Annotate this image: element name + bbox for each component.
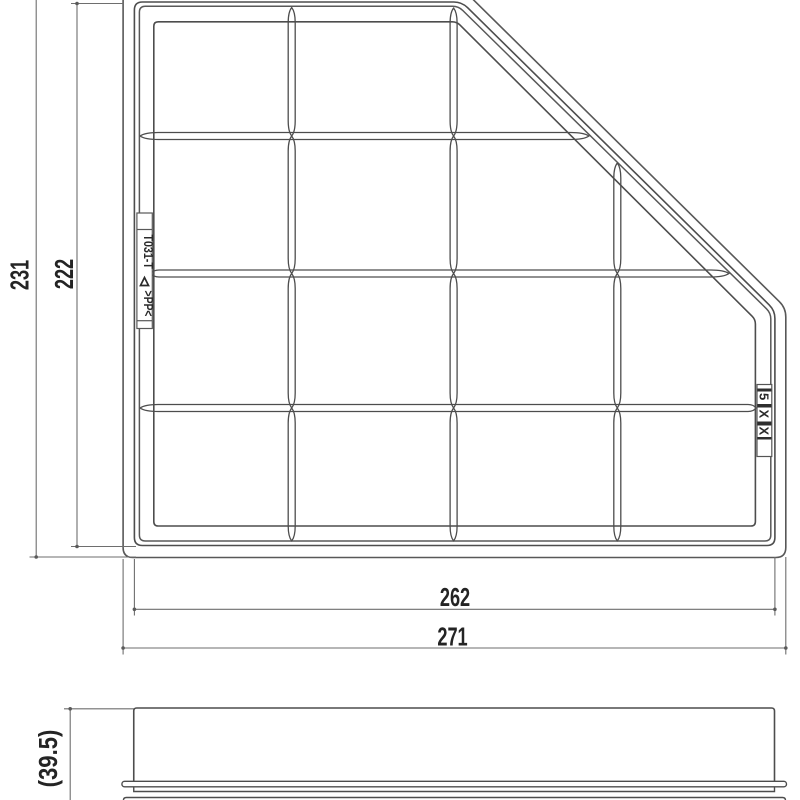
svg-text:222: 222 bbox=[50, 259, 79, 289]
svg-text:(39.5): (39.5) bbox=[34, 730, 63, 788]
svg-text:262: 262 bbox=[440, 583, 470, 612]
svg-text:271: 271 bbox=[437, 622, 467, 651]
svg-text:X: X bbox=[757, 427, 772, 436]
svg-text:231: 231 bbox=[5, 260, 34, 290]
svg-text:>PP<: >PP< bbox=[141, 291, 155, 317]
svg-text:T031-T: T031-T bbox=[141, 235, 156, 270]
svg-text:X: X bbox=[757, 410, 772, 419]
svg-text:5: 5 bbox=[757, 393, 772, 400]
